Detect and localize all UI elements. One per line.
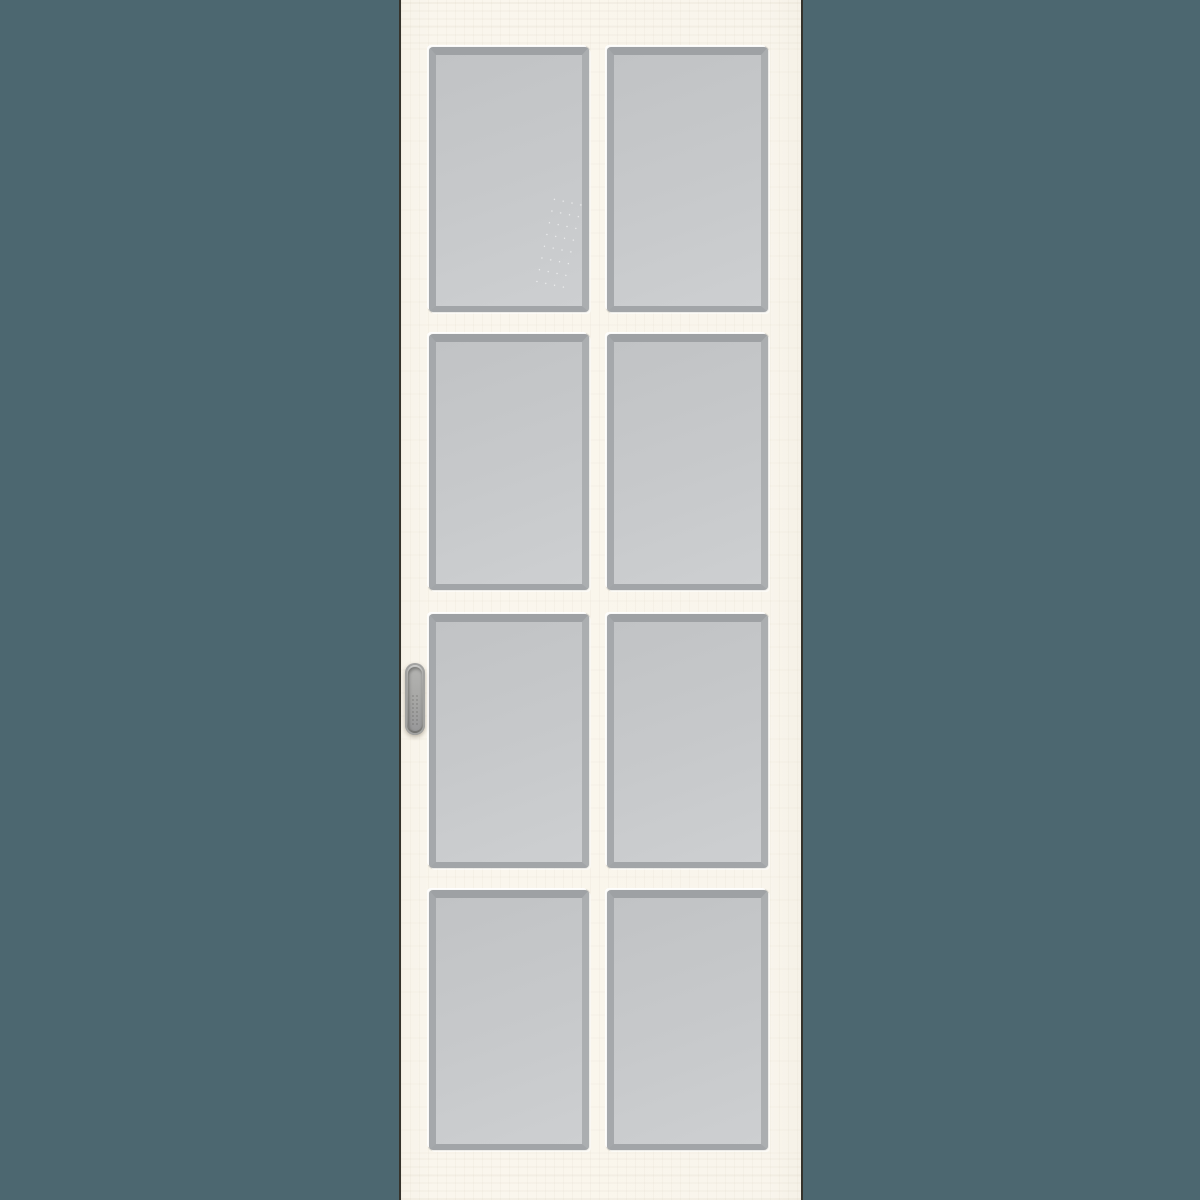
glass-pane-r4-c1 — [429, 890, 589, 1150]
glass-pane-r4-c2 — [607, 890, 768, 1150]
glass-pane-r1-c1 — [429, 47, 589, 312]
frost-speckles — [531, 193, 584, 293]
glass-pane-r2-c2 — [607, 334, 768, 590]
glass-pane-r2-c1 — [429, 334, 589, 590]
door — [399, 0, 803, 1200]
glass-pane-r3-c1 — [429, 614, 589, 868]
glass-pane-r1-c2 — [607, 47, 768, 312]
door-pull-handle — [405, 663, 425, 735]
handle-recess — [408, 667, 422, 731]
background — [0, 0, 1200, 1200]
glass-pane-r3-c2 — [607, 614, 768, 868]
